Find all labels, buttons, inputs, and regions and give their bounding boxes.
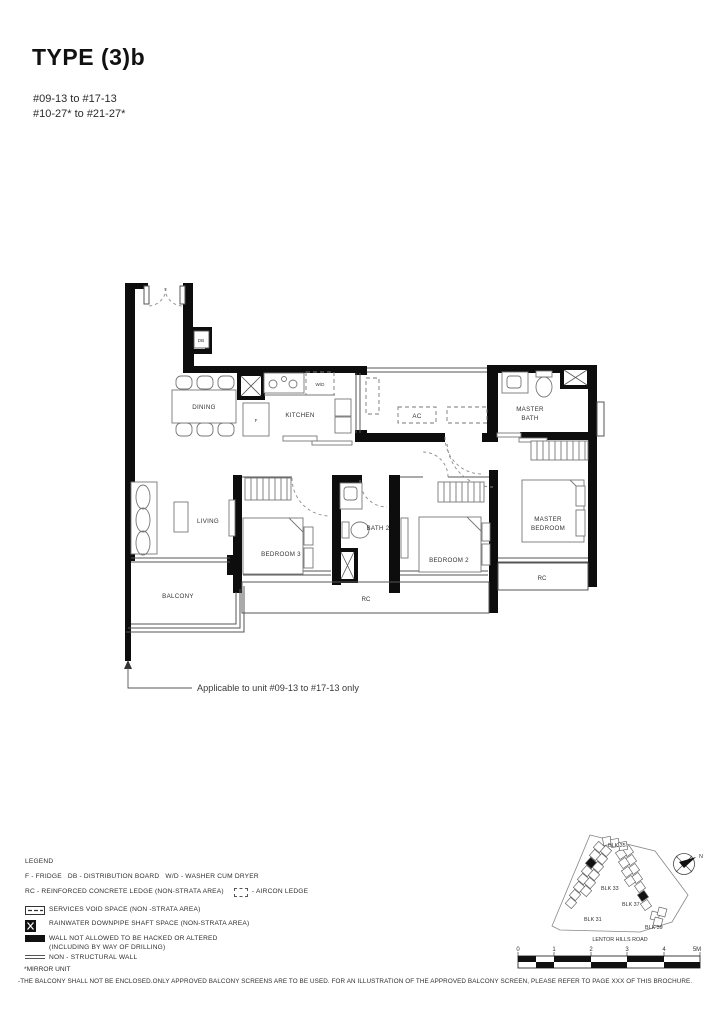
room-label-mbath-2: BATH [521, 415, 538, 422]
scale-bar: 0 1 2 3 4 5M [516, 947, 701, 968]
compass-icon: N [674, 854, 704, 875]
db-label: DB [198, 338, 204, 343]
unit-range-2: #10-27* to #21-27* [33, 108, 125, 120]
blk-37-label: BLK 37 [622, 902, 640, 908]
unit-ranges: #09-13 to #17-13 #10-27* to #21-27* [33, 92, 125, 122]
room-label-master-2: BEDROOM [531, 525, 565, 532]
dashed-fixtures [306, 372, 487, 423]
blk-31-label: BLK 31 [584, 917, 602, 923]
site-plan: BLK 35 BLK 33 BLK 31 BLK 37 BLK 39 LENTO… [505, 828, 724, 974]
mbath-toilet [536, 371, 552, 377]
coffee-table [174, 502, 188, 532]
rc-label-bottom: RC [362, 597, 371, 603]
bed-b3 [243, 518, 303, 574]
legend-item-services-void: SERVICES VOID SPACE (NON -STRATA AREA) [25, 906, 200, 915]
no-hack-wall-line2: (INCLUDING BY WAY OF DRILLING) [49, 944, 165, 951]
mirror-unit-note: *MIRROR UNIT [24, 966, 71, 973]
sofa [131, 482, 157, 554]
room-label-balcony: BALCONY [162, 593, 194, 600]
rainwater-downpipe-label: RAINWATER DOWNPIPE SHAFT SPACE (NON-STRA… [49, 920, 249, 927]
disclaimer-text: -THE BALCONY SHALL NOT BE ENCLOSED.ONLY … [18, 978, 692, 985]
floor-plan: DINING KITCHEN LIVING BALCONY BEDROOM 3 … [100, 270, 624, 704]
legend-rc-line: RC - REINFORCED CONCRETE LEDGE (NON-STRA… [25, 888, 308, 897]
rc-label-right: RC [538, 576, 547, 582]
annotation-text: Applicable to unit #09-13 to #17-13 only [197, 683, 359, 693]
road-label: LENTOR HILLS ROAD [592, 937, 647, 943]
non-structural-wall-icon [25, 954, 49, 960]
aircon-ledge-icon [234, 888, 248, 897]
tv-console [229, 500, 235, 536]
brochure-page: TYPE (3)b #09-13 to #17-13 #10-27* to #2… [0, 0, 724, 1024]
room-label-dining: DINING [192, 404, 215, 411]
services-void-icon [25, 906, 49, 915]
legend-abbrev-line: F - FRIDGE DB - DISTRIBUTION BOARD W/D -… [25, 873, 259, 880]
room-label-bedroom2: BEDROOM 2 [429, 557, 469, 564]
services-void-label: SERVICES VOID SPACE (NON -STRATA AREA) [49, 906, 200, 913]
room-label-kitchen: KITCHEN [285, 412, 314, 419]
stove [264, 373, 304, 393]
blk-35-label: BLK 35 [608, 843, 626, 849]
legend-item-rainwater: RAINWATER DOWNPIPE SHAFT SPACE (NON-STRA… [25, 920, 249, 932]
room-label-bedroom3: BEDROOM 3 [261, 551, 301, 558]
bed-master [522, 480, 584, 542]
room-label-bath2: BATH 2 [366, 525, 389, 532]
fridge-label: F [255, 418, 258, 423]
rc-line-text: RC - REINFORCED CONCRETE LEDGE (NON-STRA… [25, 888, 232, 895]
wardrobe-b2 [438, 482, 484, 502]
ac-ledge-label: AC [412, 413, 421, 420]
room-label-master-1: MASTER [534, 516, 562, 523]
legend-item-non-structural: NON - STRUCTURAL WALL [25, 954, 137, 961]
wardrobe-b3 [245, 478, 291, 500]
aircon-ledge-label: - AIRCON LEDGE [250, 888, 308, 895]
page-title: TYPE (3)b [32, 44, 145, 71]
wd-label: W/D [316, 382, 326, 387]
no-hack-wall-label: WALL NOT ALLOWED TO BE HACKED OR ALTERED… [49, 935, 218, 952]
non-structural-wall-label: NON - STRUCTURAL WALL [49, 954, 137, 961]
blk-39-label: BLK 39 [645, 925, 663, 931]
rainwater-downpipe-icon [25, 920, 49, 932]
legend-heading: LEGEND [25, 858, 53, 865]
room-label-living: LIVING [197, 518, 219, 525]
legend-item-no-hack-wall: WALL NOT ALLOWED TO BE HACKED OR ALTERED… [25, 935, 218, 952]
annotation-leader: Applicable to unit #09-13 to #17-13 only [124, 660, 359, 693]
unit-range-1: #09-13 to #17-13 [33, 93, 117, 105]
no-hack-wall-line1: WALL NOT ALLOWED TO BE HACKED OR ALTERED [49, 935, 218, 942]
blk-33-label: BLK 33 [601, 886, 619, 892]
compass-n-label: N [699, 854, 703, 860]
bath2-toilet [342, 522, 349, 538]
room-label-mbath-1: MASTER [516, 406, 544, 413]
no-hack-wall-icon [25, 935, 49, 942]
